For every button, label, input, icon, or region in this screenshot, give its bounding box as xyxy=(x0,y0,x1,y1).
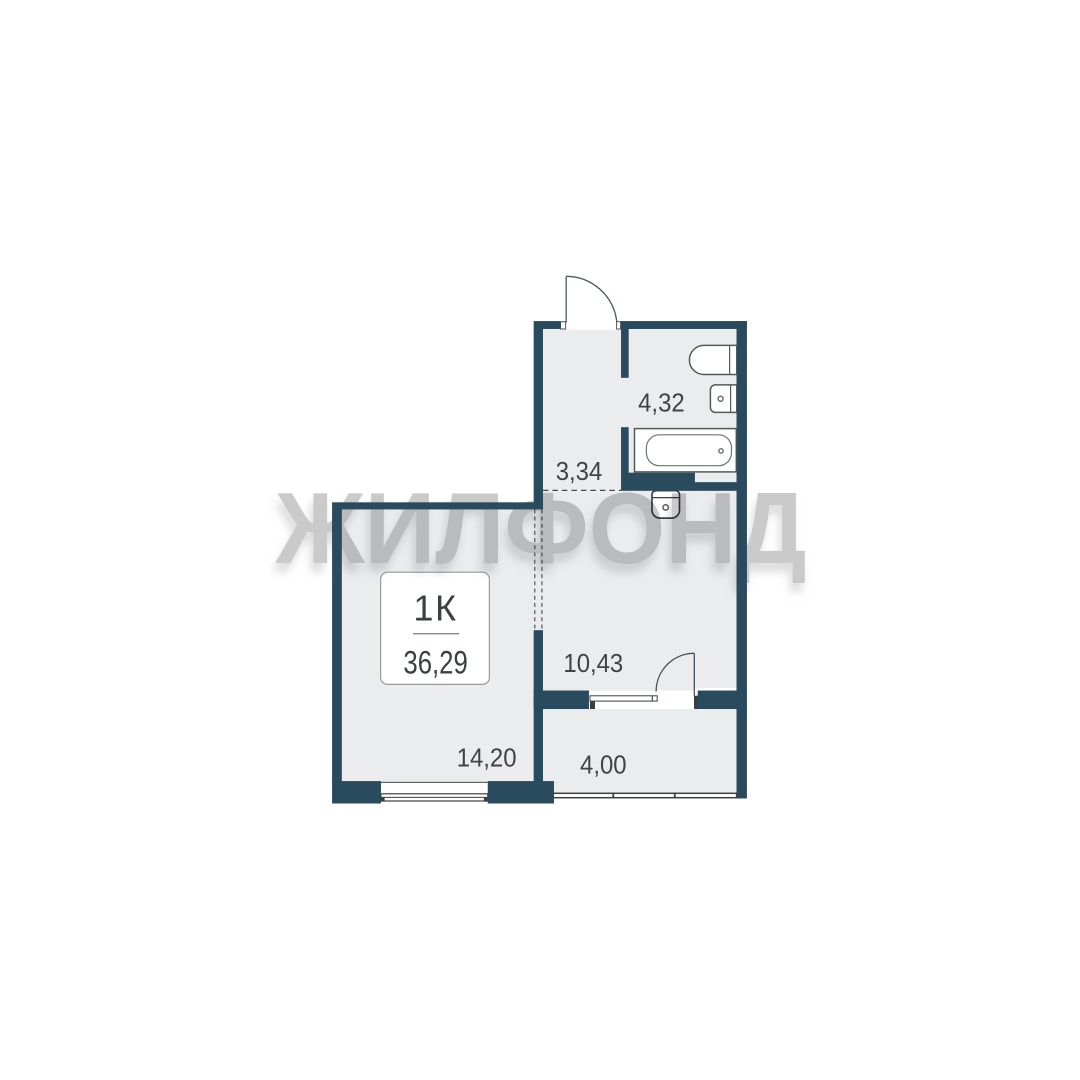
svg-text:10,43: 10,43 xyxy=(563,649,623,678)
svg-text:4,00: 4,00 xyxy=(580,750,627,779)
svg-text:4,32: 4,32 xyxy=(638,389,685,418)
svg-text:1К: 1К xyxy=(413,588,457,629)
svg-text:14,20: 14,20 xyxy=(457,744,517,773)
svg-text:36,29: 36,29 xyxy=(403,646,467,681)
